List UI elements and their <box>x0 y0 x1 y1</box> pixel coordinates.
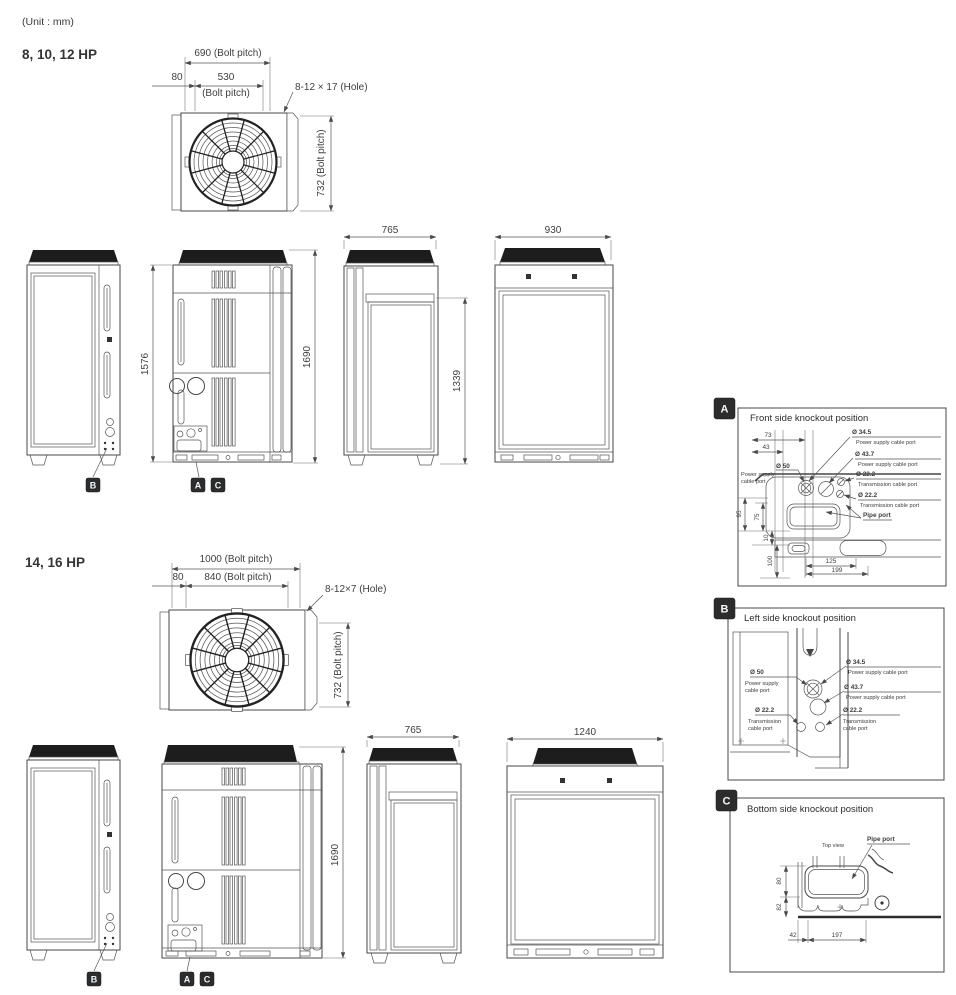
svg-text:A: A <box>184 975 191 985</box>
section-14-16hp: 14, 16 HP 1000 (Bolt pitch) 80 840 (Bolt… <box>25 554 663 986</box>
dim-1690-row1: 1690 <box>302 345 313 368</box>
panel-left-knockout: B Left side knockout position Ø 50 Power… <box>714 598 944 780</box>
dim-10: 10 <box>763 534 770 542</box>
label-b-d222a: Ø 22.2 <box>755 707 775 714</box>
dim-530-bolt-pitch: 530 <box>218 72 235 83</box>
section2-heading: 14, 16 HP <box>25 555 85 570</box>
badge-a-panel: A <box>714 398 735 419</box>
svg-text:A: A <box>195 481 202 491</box>
dim-hole-1416: 8-12×7 (Hole) <box>325 584 386 595</box>
badge-c-row2: C <box>200 972 214 986</box>
rear-view-14-16: 1240 <box>507 727 663 958</box>
dim-43: 43 <box>762 444 770 451</box>
svg-text:B: B <box>721 604 729 616</box>
panel-c-title: Bottom side knockout position <box>747 804 873 815</box>
label-b-d222b: Ø 22.2 <box>843 707 863 714</box>
panel-a-title: Front side knockout position <box>750 413 868 424</box>
dim-530-bolt-pitch-sub: (Bolt pitch) <box>202 88 250 99</box>
label-b-d222b-desc2: cable port <box>843 726 868 732</box>
dim-125: 125 <box>826 558 837 565</box>
dim-80-offset-row2: 80 <box>172 572 184 583</box>
dim-42: 42 <box>789 932 797 939</box>
label-a-d50-desc1: Power supply <box>741 472 775 478</box>
label-b-d345-desc: Power supply cable port <box>848 670 908 676</box>
svg-text:C: C <box>204 975 211 985</box>
label-a-d50: Ø 50 <box>776 463 790 470</box>
dim-1339: 1339 <box>452 369 463 392</box>
label-b-d345: Ø 34.5 <box>846 659 866 666</box>
section1-heading: 8, 10, 12 HP <box>22 47 97 62</box>
badge-a-row1: A <box>191 478 205 492</box>
dim-199: 199 <box>832 567 843 574</box>
left-side-view-8-10-12: B <box>27 250 120 492</box>
dim-1690-row2: 1690 <box>330 843 341 866</box>
top-view-14-16: 1000 (Bolt pitch) 80 840 (Bolt pitch) 8-… <box>152 554 386 711</box>
dim-840-bolt-pitch: 840 (Bolt pitch) <box>204 572 271 583</box>
dim-765-row2: 765 <box>405 725 422 736</box>
badge-b-panel: B <box>714 598 735 619</box>
panel-bottom-knockout: C Bottom side knockout position Top view… <box>716 790 944 972</box>
drawing-svg: (Unit : mm) 8, 10, 12 HP 690 (Bolt pitch… <box>0 0 956 995</box>
dim-82: 82 <box>776 903 783 911</box>
label-a-d437: Ø 43.7 <box>855 451 875 458</box>
badge-c-row1: C <box>211 478 225 492</box>
label-a-d345: Ø 34.5 <box>852 429 872 436</box>
dim-1576: 1576 <box>140 352 151 375</box>
dim-732-bolt-pitch-row2: 732 (Bolt pitch) <box>333 631 344 698</box>
dim-95: 95 <box>736 510 743 518</box>
label-b-d222b-desc1: Transmission <box>843 719 876 725</box>
dim-75: 75 <box>754 513 761 521</box>
label-a-d222a-desc: Transmission cable port <box>858 482 918 488</box>
panel-front-knockout: A Front side knockout position 73 43 Ø 5… <box>714 398 946 586</box>
badge-a-row2: A <box>180 972 194 986</box>
label-a-pipe-port: Pipe port <box>863 512 892 519</box>
label-a-d222b-desc: Transmission cable port <box>860 503 920 509</box>
label-a-d222a: Ø 22.2 <box>856 471 876 478</box>
side-view-8-10-12: 765 1339 <box>344 225 468 465</box>
label-b-d50-desc1: Power supply <box>745 681 779 687</box>
dim-930: 930 <box>545 225 562 236</box>
dim-765-row1: 765 <box>382 225 399 236</box>
svg-text:C: C <box>723 796 731 808</box>
section-8-10-12hp: 8, 10, 12 HP 690 (Bolt pitch) 80 530 (Bo… <box>22 47 613 492</box>
label-b-d437-desc: Power supply cable port <box>846 695 906 701</box>
svg-text:B: B <box>91 975 98 985</box>
label-b-d437: Ø 43.7 <box>844 684 864 691</box>
dim-80-panel-c: 80 <box>776 877 783 885</box>
front-view-14-16: 1690 A C <box>162 745 346 986</box>
dim-690-bolt-pitch: 690 (Bolt pitch) <box>194 48 261 59</box>
badge-b-row2: B <box>87 972 101 986</box>
unit-note: (Unit : mm) <box>22 16 74 28</box>
left-side-view-14-16: B <box>27 745 120 986</box>
panel-b-title: Left side knockout position <box>744 613 856 624</box>
side-view-14-16: 765 <box>367 725 461 963</box>
dim-73: 73 <box>764 432 772 439</box>
label-b-d222a-desc1: Transmission <box>748 719 781 725</box>
label-c-pipe-port: Pipe port <box>867 836 896 843</box>
badge-c-panel: C <box>716 790 737 811</box>
label-c-top-view: Top view <box>822 843 845 849</box>
dim-732-bolt-pitch: 732 (Bolt pitch) <box>316 129 327 196</box>
label-b-d50-desc2: cable port <box>745 688 770 694</box>
dim-80-offset: 80 <box>171 72 183 83</box>
dim-1240: 1240 <box>574 727 597 738</box>
dim-hole-81012: 8-12 × 17 (Hole) <box>295 82 368 93</box>
label-a-d437-desc: Power supply cable port <box>858 462 918 468</box>
front-view-8-10-12: 1576 1690 A C <box>140 250 318 492</box>
dim-197: 197 <box>832 932 843 939</box>
top-view-8-10-12: 690 (Bolt pitch) 80 530 (Bolt pitch) 8-1… <box>152 48 368 211</box>
svg-text:C: C <box>215 481 222 491</box>
rear-view-8-10-12: 930 <box>495 225 613 462</box>
svg-text:B: B <box>90 481 97 491</box>
dimension-drawing-page: (Unit : mm) 8, 10, 12 HP 690 (Bolt pitch… <box>0 0 956 995</box>
dim-1000-bolt-pitch: 1000 (Bolt pitch) <box>200 554 273 565</box>
label-a-d50-desc2: cable port <box>741 479 766 485</box>
badge-b-row1: B <box>86 478 100 492</box>
dim-100: 100 <box>767 555 774 566</box>
svg-text:A: A <box>721 404 729 416</box>
label-b-d50: Ø 50 <box>750 669 764 676</box>
label-a-d222b: Ø 22.2 <box>858 492 878 499</box>
label-a-d345-desc: Power supply cable port <box>856 440 916 446</box>
label-b-d222a-desc2: cable port <box>748 726 773 732</box>
